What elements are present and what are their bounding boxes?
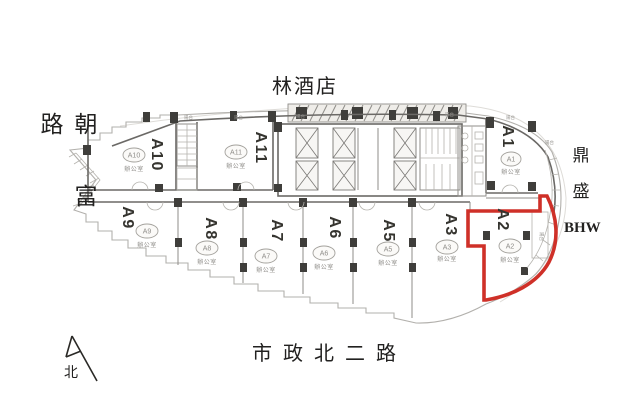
unit-id-rotated: A10 [148,138,165,172]
balcony-label: 陽台 [538,232,545,241]
unit-id-circle: A1 [507,157,516,164]
balcony-label: 陽台 [506,114,515,121]
balcony-label: 陽台 [184,114,193,121]
unit-a5: A5 A5 辦公室 [377,219,399,267]
unit-id-rotated: A7 [268,219,285,242]
unit-use: 辦公室 [226,162,246,170]
unit-id-circle: A8 [203,246,212,253]
unit-id-rotated: A2 [494,208,511,231]
unit-id-rotated: A5 [380,219,397,242]
balcony-label: 陽台 [545,139,554,146]
unit-id-circle: A9 [143,229,152,236]
unit-use: 辦公室 [124,165,144,173]
unit-use: 辦公室 [378,259,398,267]
unit-id-circle: A3 [443,245,452,252]
unit-a1: A1 A1 辦公室 [499,125,521,176]
unit-a8: A8 A8 辦公室 [196,217,219,266]
right-landmark-line1: 鼎 [564,138,598,174]
unit-use: 辦公室 [137,241,157,249]
unit-id-rotated: A11 [252,132,269,165]
unit-id-rotated: A6 [326,216,343,239]
unit-id-circle: A11 [230,150,242,157]
unit-id-rotated: A8 [202,217,219,240]
unit-use: 辦公室 [256,266,276,274]
bottom-road-label: 市政北二路 [252,337,407,366]
service-core [278,124,462,196]
unit-id-circle: A5 [384,247,393,254]
unit-use: 辦公室 [501,168,521,176]
balcony-label: 陽台 [296,113,305,120]
unit-id-rotated: A1 [499,125,516,148]
unit-id-circle: A7 [262,254,271,261]
right-landmark-line2: 盛 [564,174,598,210]
balcony-label: 陽台 [445,111,454,118]
right-landmark-line3: BHW [564,210,598,246]
unit-a10: A10 A10 辦公室 [123,138,165,173]
unit-use: 辦公室 [437,255,457,263]
unit-a3: A3 A3 辦公室 [436,213,459,263]
north-arrow: 北 [64,336,97,381]
unit-id-circle: A10 [128,153,141,160]
north-label: 北 [64,365,78,381]
unit-a6: A6 A6 辦公室 [313,216,343,271]
unit-a2-highlighted: A2 A2 辦公室 [494,208,521,264]
core-stair [420,128,460,190]
left-road-label: 朝富路 [32,112,100,312]
unit-id-rotated: A3 [442,213,459,236]
unit-use: 辦公室 [314,263,334,271]
left-stairwell [177,124,197,190]
unit-id-circle: A2 [506,244,515,251]
unit-a11: A11 A11 辦公室 [225,132,269,170]
right-landmark-label: 鼎 盛 BHW [564,138,598,246]
balcony-label: 陽台 [234,114,243,121]
unit-id-rotated: A9 [119,206,136,229]
unit-use: 辦公室 [500,256,520,264]
hotel-label: 林酒店 [272,70,352,99]
unit-use: 辦公室 [197,258,217,266]
scanned-floor-plan-page: A10 A10 辦公室 A11 A11 辦公室 A1 A1 辦公室 A9 A9 … [0,0,640,409]
unit-a7: A7 A7 辦公室 [255,219,285,274]
unit-id-circle: A6 [320,251,329,258]
unit-a9: A9 A9 辦公室 [119,206,158,249]
